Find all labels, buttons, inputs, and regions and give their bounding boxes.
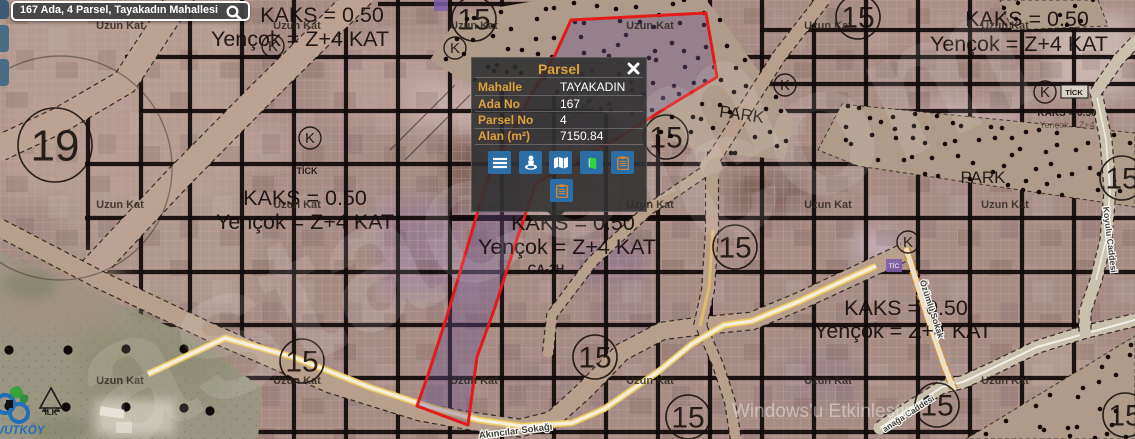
svg-text:Uzun Kat: Uzun Kat	[450, 375, 498, 387]
svg-text:İLK: İLK	[45, 408, 58, 416]
svg-text:15: 15	[671, 402, 704, 435]
svg-text:19: 19	[31, 121, 80, 170]
svg-text:Uzun Kat: Uzun Kat	[96, 199, 144, 211]
svg-text:AVUTKÖY: AVUTKÖY	[0, 424, 46, 437]
svg-text:Yençok = Z+4 KAT: Yençok = Z+4 KAT	[814, 319, 992, 343]
svg-text:Uzun Kat: Uzun Kat	[981, 375, 1029, 387]
svg-text:Uzun Kat: Uzun Kat	[96, 20, 144, 32]
svg-text:K: K	[903, 234, 913, 251]
svg-text:15: 15	[578, 342, 611, 375]
svg-text:Uzun Kat: Uzun Kat	[450, 20, 498, 32]
svg-text:TİC: TİC	[889, 261, 900, 270]
svg-text:15: 15	[1108, 400, 1135, 433]
svg-text:TİCK: TİCK	[1065, 88, 1083, 97]
svg-text:Uzun Kat: Uzun Kat	[626, 375, 674, 387]
svg-text:K: K	[450, 40, 460, 57]
svg-text:Uzun Kat: Uzun Kat	[804, 375, 852, 387]
svg-text:KAKS = 0.50: KAKS = 0.50	[844, 296, 968, 320]
svg-text:15: 15	[1105, 163, 1135, 196]
svg-text:Windows'u Etkinleştir: Windows'u Etkinleştir	[732, 401, 912, 422]
svg-text:Uzun Kat: Uzun Kat	[981, 199, 1029, 211]
svg-text:Uzun Kat: Uzun Kat	[273, 20, 321, 32]
svg-text:TİCK: TİCK	[297, 166, 318, 176]
svg-text:K: K	[305, 130, 315, 147]
